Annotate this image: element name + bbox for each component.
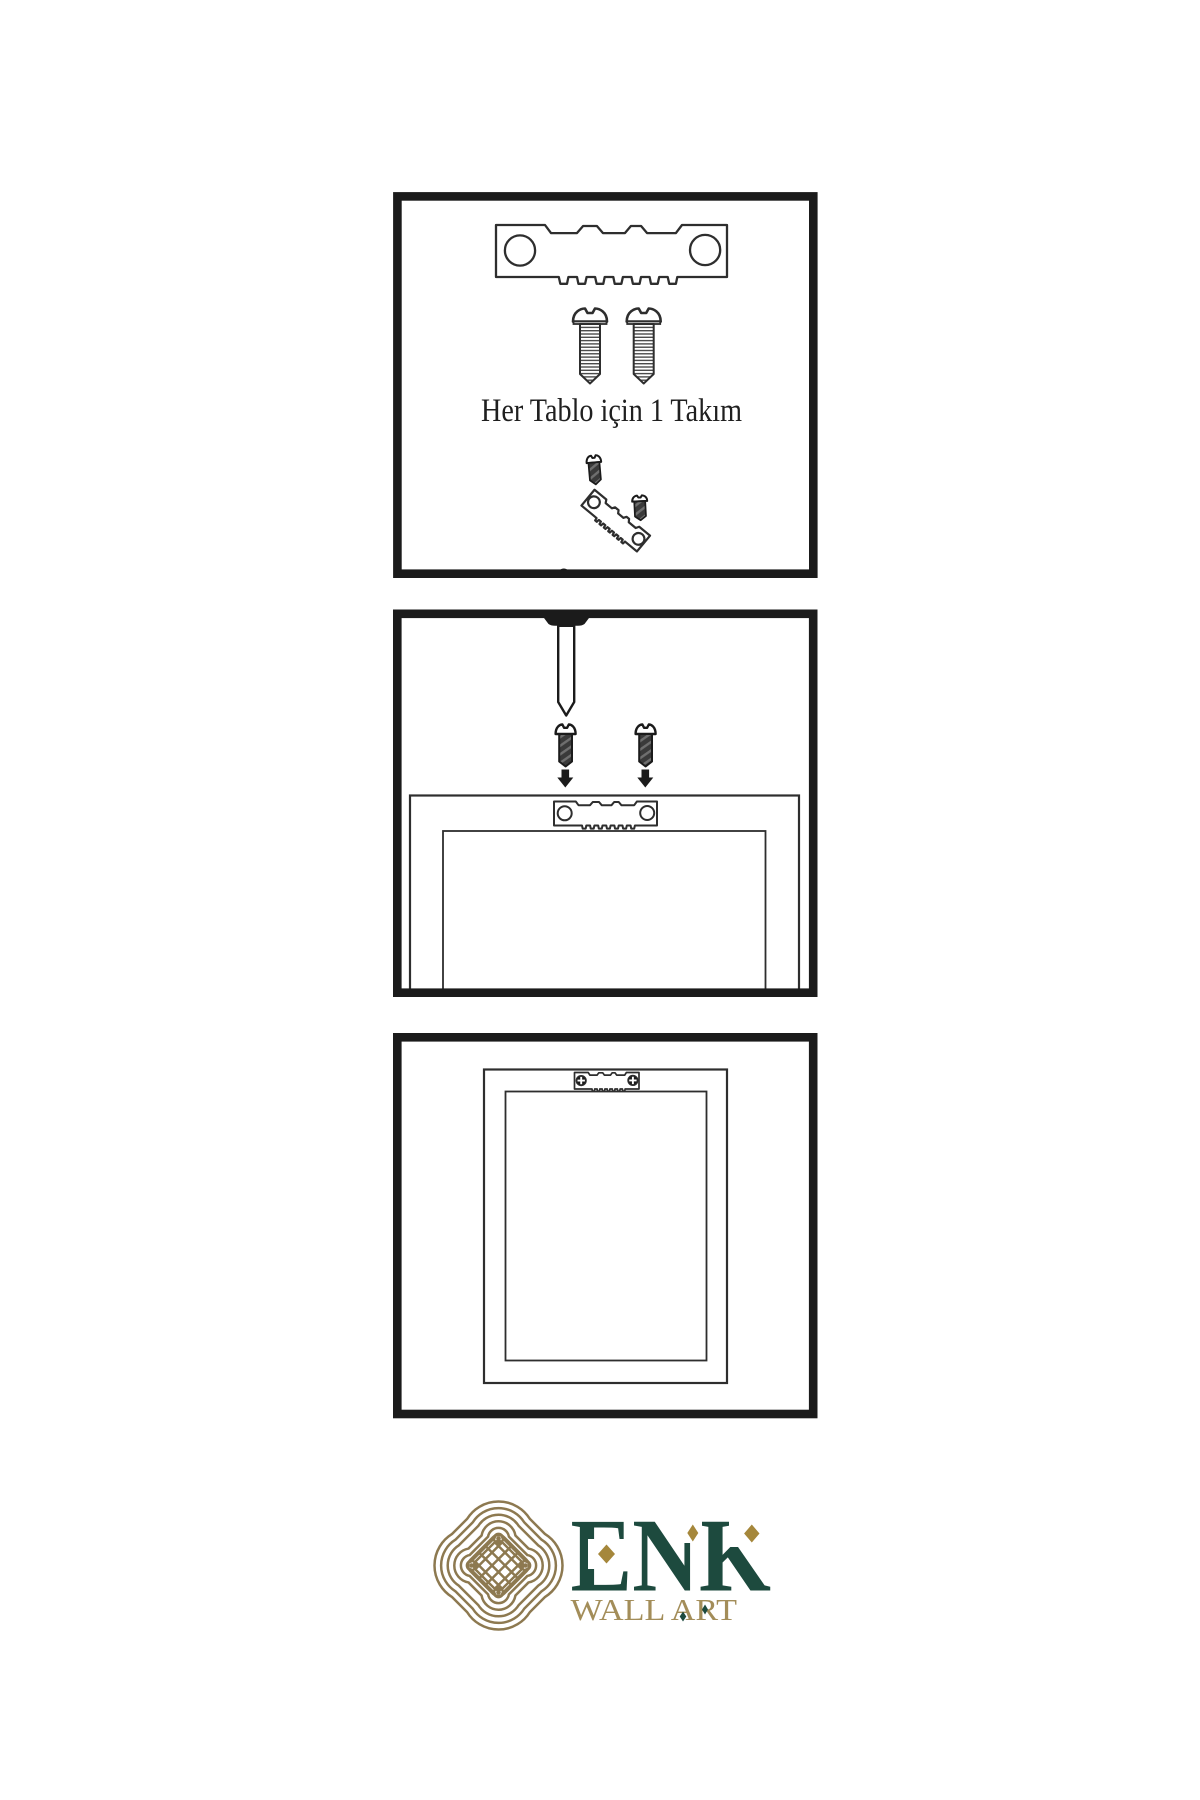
svg-text:Her Tablo için 1 Takım: Her Tablo için 1 Takım [481,393,742,429]
svg-text:WALL ART: WALL ART [571,1592,738,1627]
